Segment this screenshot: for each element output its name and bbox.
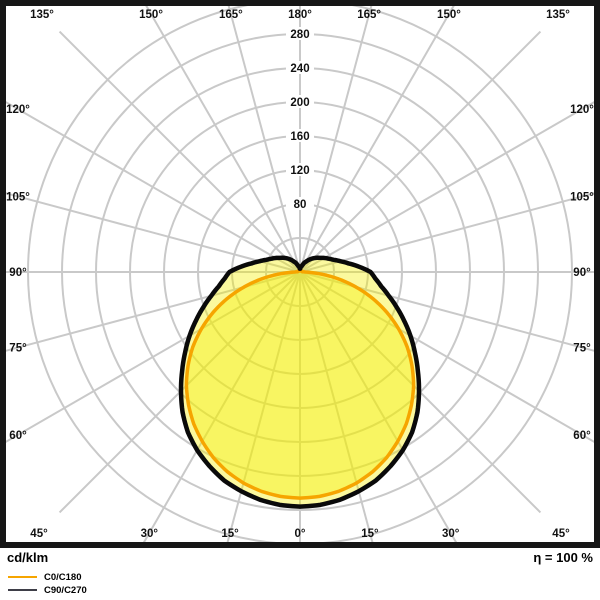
angle-label: 60°: [9, 430, 27, 442]
angle-label: 45°: [552, 528, 570, 540]
efficiency-label: η = 100 %: [533, 550, 593, 565]
angle-label: 105°: [570, 191, 594, 203]
angle-label: 90°: [573, 267, 591, 279]
angle-label: 105°: [6, 191, 30, 203]
unit-label: cd/klm: [7, 550, 48, 565]
legend: C0/C180 C90/C270: [8, 571, 87, 597]
legend-label-c90: C90/C270: [44, 585, 87, 596]
angle-label: 180°: [288, 9, 312, 21]
angle-label: 90°: [9, 267, 27, 279]
legend-swatch-c0-line: [8, 576, 37, 578]
legend-item-c90: C90/C270: [8, 584, 87, 596]
polar-chart-svg: 801201602002402800°15°15°30°30°45°45°60°…: [0, 0, 600, 600]
angle-label: 120°: [570, 104, 594, 116]
angle-label: 75°: [573, 343, 591, 355]
angle-label: 150°: [139, 9, 163, 21]
angle-label: 120°: [6, 104, 30, 116]
radial-tick-label: 120: [290, 165, 309, 177]
photometric-diagram-page: 801201602002402800°15°15°30°30°45°45°60°…: [0, 0, 600, 600]
radial-tick-label: 240: [290, 63, 309, 75]
radial-tick-label: 160: [290, 131, 309, 143]
polar-chart: 801201602002402800°15°15°30°30°45°45°60°…: [0, 0, 600, 600]
angle-label: 135°: [546, 9, 570, 21]
radial-tick-label: 280: [290, 29, 309, 41]
angle-label: 45°: [30, 528, 48, 540]
legend-swatch-c90-line: [8, 589, 37, 591]
legend-label-c0: C0/C180: [44, 572, 82, 583]
angle-label: 15°: [221, 528, 239, 540]
angle-label: 150°: [437, 9, 461, 21]
angle-label: 60°: [573, 430, 591, 442]
angle-label: 75°: [9, 343, 27, 355]
angle-label: 30°: [442, 528, 460, 540]
angle-label: 135°: [30, 9, 54, 21]
legend-item-c0: C0/C180: [8, 571, 87, 583]
angle-label: 165°: [357, 9, 381, 21]
radial-tick-label: 80: [294, 199, 307, 211]
radial-tick-label: 200: [290, 97, 309, 109]
angle-label: 15°: [361, 528, 379, 540]
angle-label: 165°: [219, 9, 243, 21]
angle-label: 30°: [141, 528, 159, 540]
angle-label: 0°: [295, 528, 306, 540]
